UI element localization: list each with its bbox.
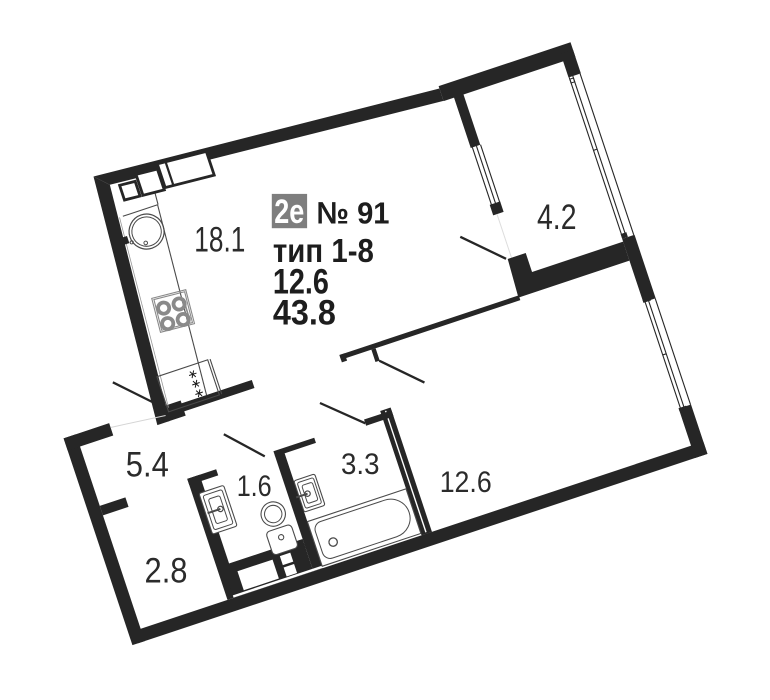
svg-text:2е: 2е: [274, 193, 304, 231]
svg-text:4.2: 4.2: [537, 198, 577, 237]
svg-text:18.1: 18.1: [194, 221, 245, 260]
svg-text:1.6: 1.6: [237, 470, 272, 503]
svg-text:2.8: 2.8: [145, 551, 188, 590]
svg-text:43.8: 43.8: [273, 294, 336, 333]
svg-text:5.4: 5.4: [126, 445, 169, 484]
svg-text:№ 91: № 91: [317, 196, 390, 231]
svg-text:3.3: 3.3: [341, 448, 380, 481]
svg-text:12.6: 12.6: [440, 466, 492, 499]
